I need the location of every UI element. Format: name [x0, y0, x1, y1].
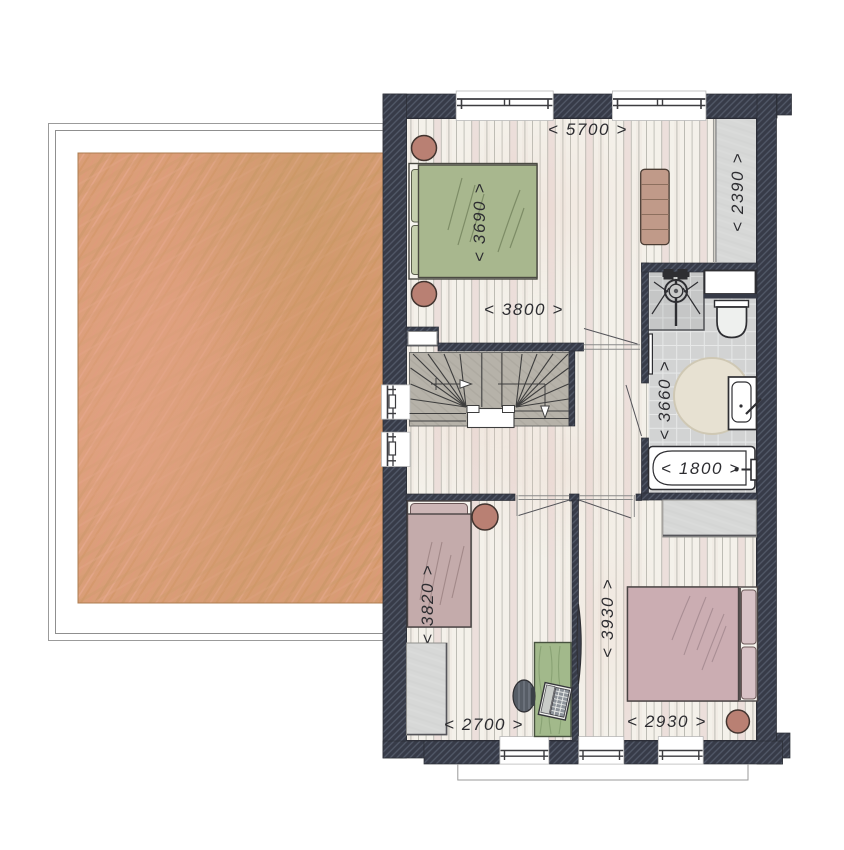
svg-text:< 2390 >: < 2390 >	[728, 152, 747, 232]
svg-text:< 3660 >: < 3660 >	[655, 360, 674, 440]
svg-text:< 3820 >: < 3820 >	[418, 564, 437, 644]
svg-text:< 1800 >: < 1800 >	[661, 459, 741, 478]
svg-text:< 5700 >: < 5700 >	[548, 120, 628, 139]
svg-text:< 3800 >: < 3800 >	[484, 300, 564, 319]
svg-text:< 3930 >: < 3930 >	[598, 578, 617, 658]
svg-text:< 2700 >: < 2700 >	[444, 715, 524, 734]
svg-text:< 2930 >: < 2930 >	[627, 712, 707, 731]
svg-text:< 3690 >: < 3690 >	[470, 182, 489, 262]
